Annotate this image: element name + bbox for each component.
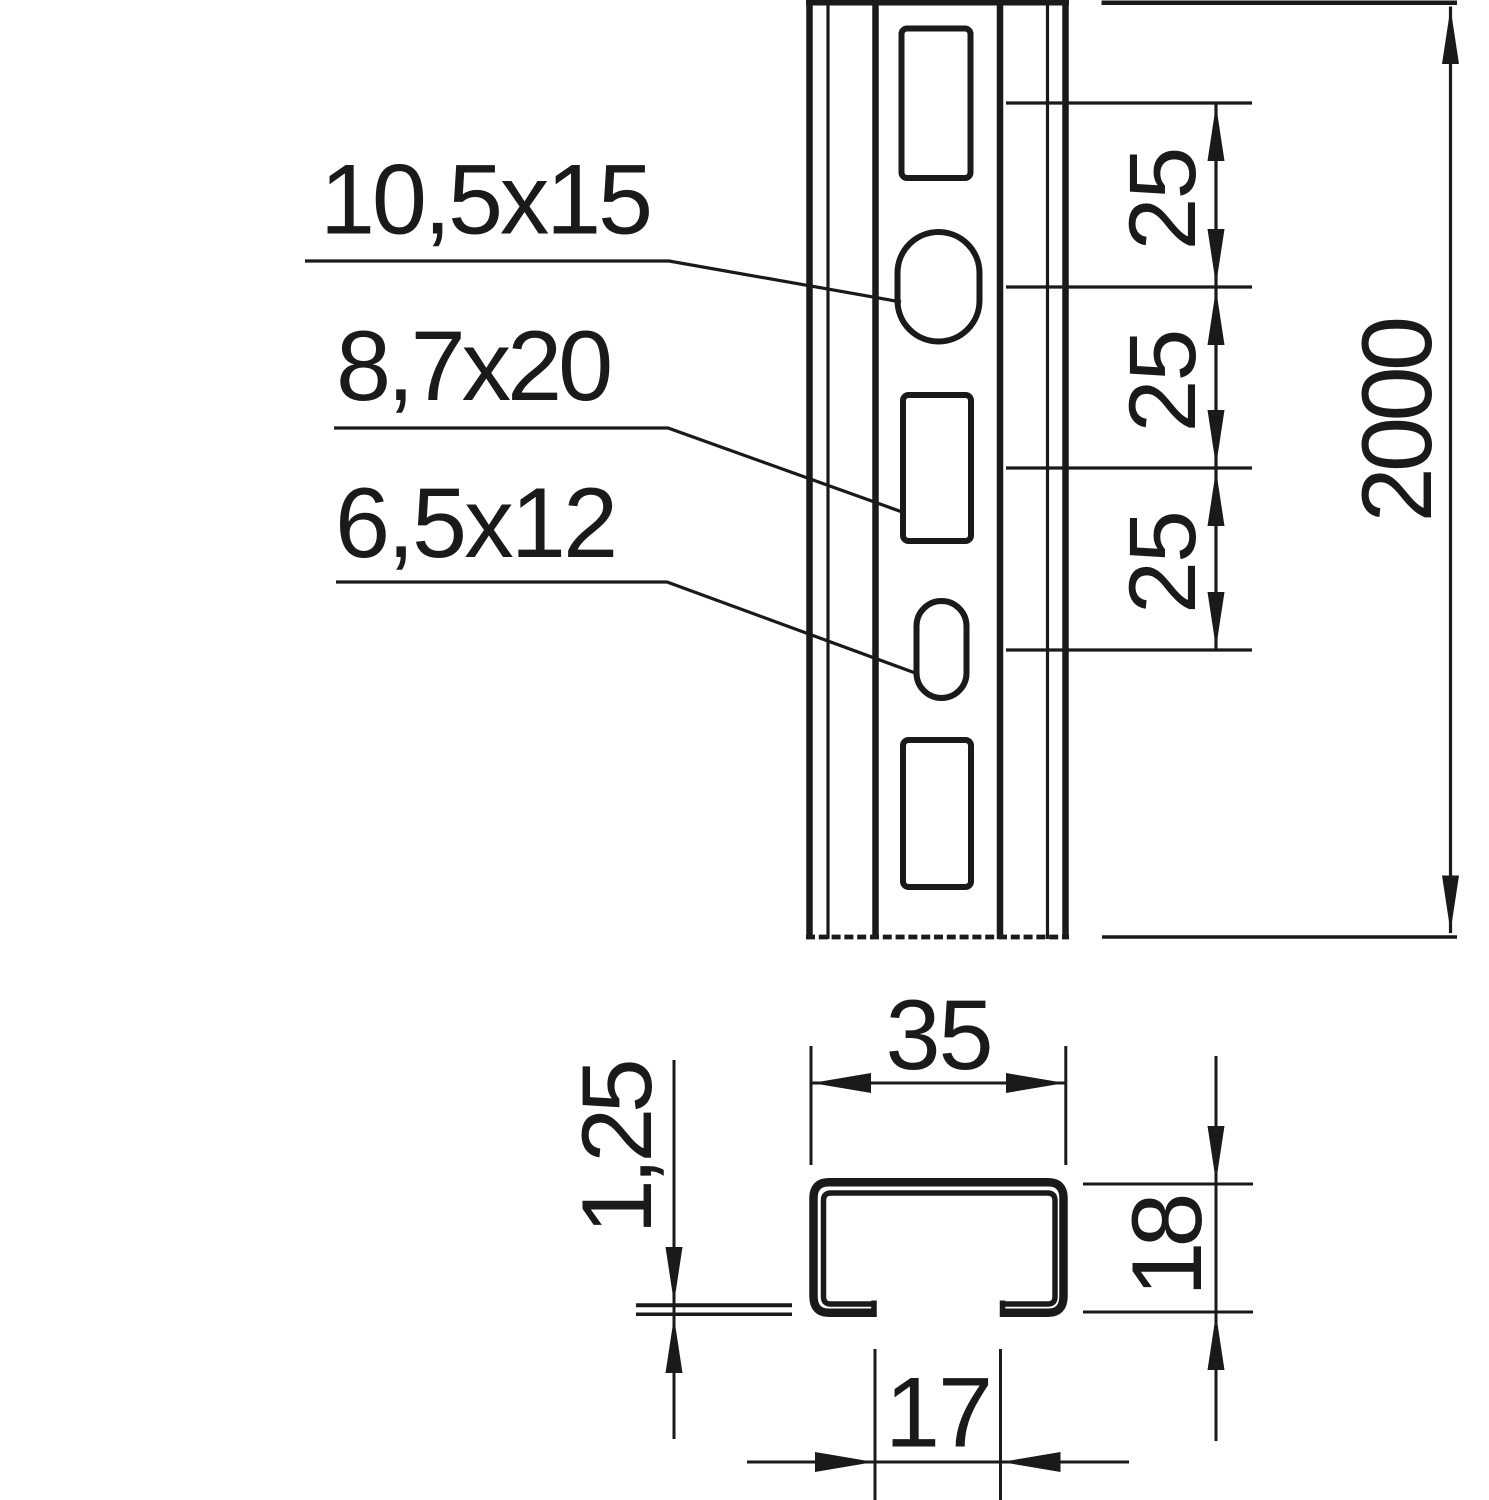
svg-text:25: 25 <box>1110 512 1216 614</box>
svg-text:10,5x15: 10,5x15 <box>320 144 650 255</box>
svg-text:8,7x20: 8,7x20 <box>336 310 610 421</box>
svg-text:2000: 2000 <box>1341 319 1452 522</box>
svg-text:6,5x12: 6,5x12 <box>335 467 615 578</box>
svg-text:17: 17 <box>885 1357 991 1468</box>
svg-text:1,25: 1,25 <box>561 1062 672 1234</box>
svg-text:25: 25 <box>1110 149 1216 251</box>
svg-text:35: 35 <box>885 979 991 1090</box>
svg-text:18: 18 <box>1111 1197 1222 1297</box>
svg-text:25: 25 <box>1110 331 1216 433</box>
